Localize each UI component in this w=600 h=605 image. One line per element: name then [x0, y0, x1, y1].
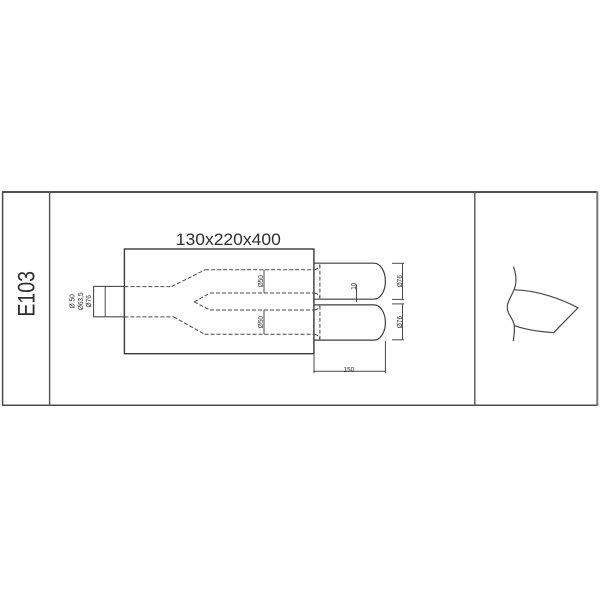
svg-text:130x220x400: 130x220x400 — [176, 229, 281, 249]
svg-text:Ø76: Ø76 — [397, 316, 404, 328]
svg-text:Ø50: Ø50 — [258, 316, 265, 328]
svg-text:Ø76: Ø76 — [397, 275, 404, 287]
svg-text:Ø63,5: Ø63,5 — [78, 292, 85, 310]
svg-text:Ø 50: Ø 50 — [69, 294, 76, 308]
svg-text:E103: E103 — [12, 271, 40, 317]
svg-text:Ø50: Ø50 — [258, 275, 265, 287]
svg-text:10: 10 — [351, 283, 358, 290]
svg-text:150: 150 — [343, 367, 354, 374]
svg-text:Ø76: Ø76 — [86, 295, 93, 307]
